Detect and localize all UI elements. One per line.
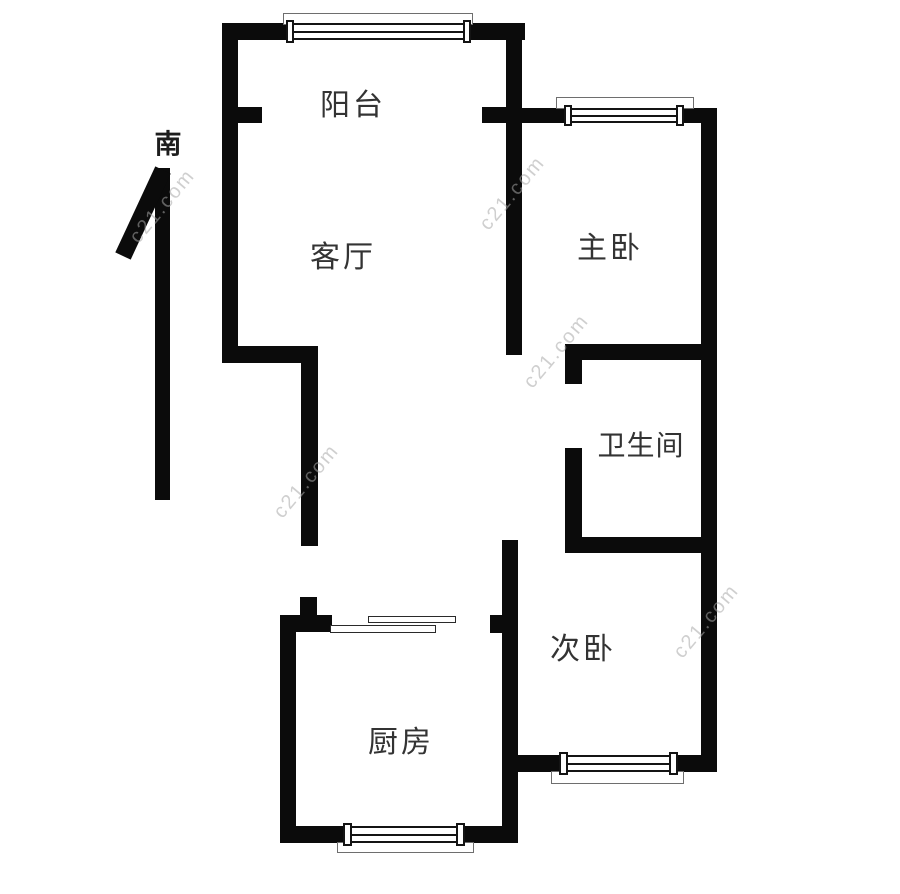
wall-living-room-bottom (222, 346, 318, 363)
wall-second-bedroom-left (502, 540, 518, 843)
wall-kitchen-top (280, 615, 332, 632)
balcony-window (290, 23, 467, 40)
label-bathroom: 卫生间 (597, 424, 684, 464)
balcony-window-cap-right (463, 20, 471, 43)
balcony-window-cap-left (286, 20, 294, 43)
wall-balcony-stub-right (482, 107, 506, 123)
wall-exterior-right (701, 108, 717, 772)
wall-balcony-left (222, 23, 238, 363)
wall-kitchen-stub (300, 597, 317, 615)
kitchen-window-cap-left (343, 823, 352, 846)
kitchen-window-sill (337, 842, 474, 853)
second-bedroom-window-cap-right (669, 752, 678, 775)
wall-living-room-right (506, 23, 522, 355)
label-living-room: 客厅 (310, 232, 376, 276)
kitchen-sliding-door-panel-2 (330, 625, 436, 633)
wall-bathroom-bottom (565, 537, 701, 553)
master-window (568, 108, 680, 123)
wall-balcony-stub-left (238, 107, 262, 123)
kitchen-window (347, 826, 463, 843)
master-window-cap-right (676, 105, 684, 126)
label-second-bedroom: 次卧 (550, 624, 616, 668)
wall-hall-left (301, 363, 318, 546)
wall-second-bedroom-stub (490, 615, 502, 633)
second-bedroom-window (563, 755, 677, 772)
second-bedroom-window-cap-left (559, 752, 568, 775)
label-balcony: 阳台 (320, 80, 386, 124)
wall-master-bathroom-divider (565, 344, 701, 360)
wall-bathroom-left-upper (565, 344, 582, 384)
label-master-bedroom: 主卧 (577, 223, 643, 267)
kitchen-sliding-door-panel-1 (368, 616, 456, 623)
floor-plan: 南 阳台 客厅 主卧 卫生间 次卧 厨房 c21.com c21.co (0, 0, 900, 894)
compass-south-label: 南 (155, 123, 182, 162)
second-bedroom-window-sill (551, 771, 684, 784)
label-kitchen: 厨房 (368, 717, 434, 761)
master-window-cap-left (564, 105, 572, 126)
kitchen-window-cap-right (456, 823, 465, 846)
wall-kitchen-left (280, 615, 296, 843)
north-arrow-icon (105, 158, 185, 508)
